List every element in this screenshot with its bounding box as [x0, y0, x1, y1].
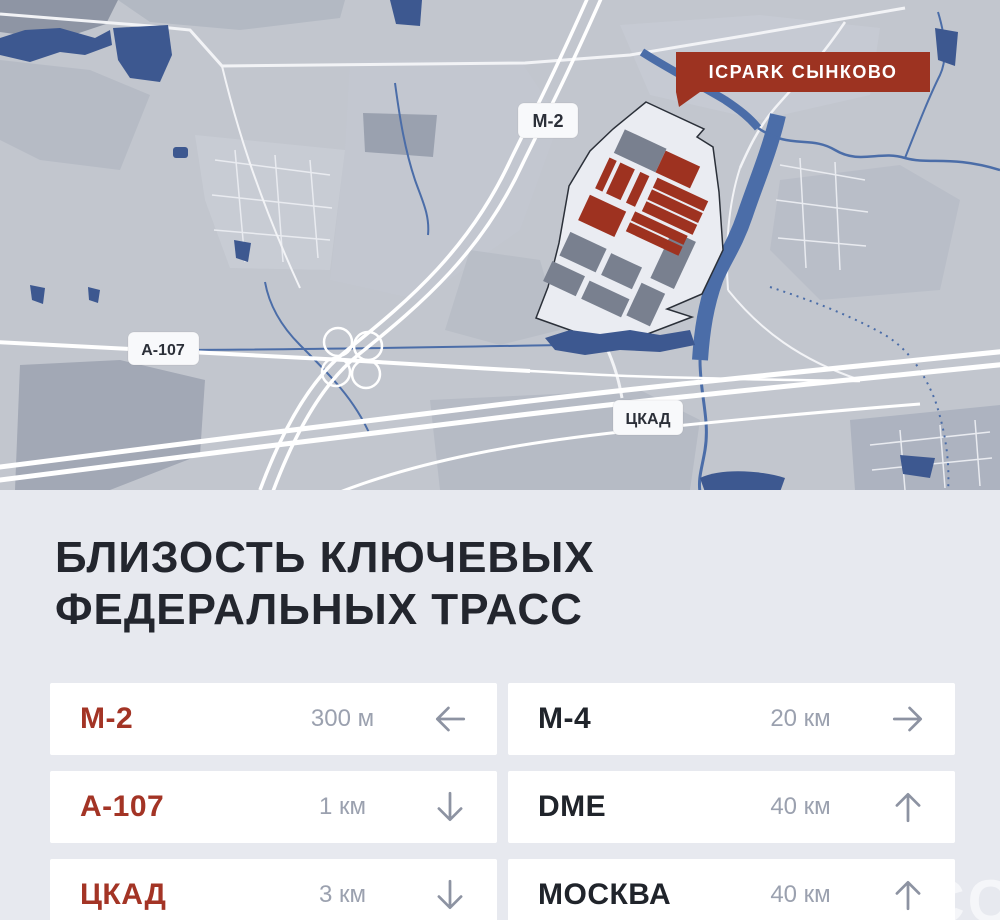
- page: М-2 А-107 ЦКАД ICPARK СЫНКОВО БЛИЗОСТЬ К…: [0, 0, 1000, 920]
- arrow-left-icon: [431, 700, 469, 738]
- route-card: ЦКАД3 км: [50, 859, 497, 920]
- road-label-tskad: ЦКАД: [613, 400, 683, 435]
- route-name: А-107: [50, 790, 255, 824]
- route-distance: 40 км: [713, 881, 888, 909]
- watermark: CC: [921, 867, 1000, 920]
- section-title-line2: ФЕДЕРАЛЬНЫХ ТРАСС: [55, 584, 595, 636]
- svg-text:А-107: А-107: [141, 342, 185, 359]
- arrow-up-icon: [889, 788, 927, 826]
- route-distance: 300 м: [255, 705, 430, 733]
- route-card: А-1071 км: [50, 771, 497, 843]
- routes-grid: М-2300 мМ-420 кмА-1071 кмDME40 кмЦКАД3 к…: [50, 683, 955, 920]
- route-card: М-2300 м: [50, 683, 497, 755]
- svg-text:ЦКАД: ЦКАД: [626, 411, 672, 428]
- route-card: МОСКВА40 км: [508, 859, 955, 920]
- map-canvas: М-2 А-107 ЦКАД ICPARK СЫНКОВО: [0, 0, 1000, 490]
- route-distance: 40 км: [713, 793, 888, 821]
- arrow-down-icon: [431, 788, 469, 826]
- route-card: DME40 км: [508, 771, 955, 843]
- arrow-down-icon: [431, 876, 469, 914]
- route-name: МОСКВА: [508, 878, 713, 912]
- route-name: ЦКАД: [50, 878, 255, 912]
- route-name: М-2: [50, 702, 255, 736]
- route-distance: 20 км: [713, 705, 888, 733]
- route-distance: 1 км: [255, 793, 430, 821]
- section-title-line1: БЛИЗОСТЬ КЛЮЧЕВЫХ: [55, 532, 595, 584]
- arrow-right-icon: [889, 700, 927, 738]
- location-map: М-2 А-107 ЦКАД ICPARK СЫНКОВО: [0, 0, 1000, 490]
- section-title: БЛИЗОСТЬ КЛЮЧЕВЫХ ФЕДЕРАЛЬНЫХ ТРАСС: [55, 532, 595, 636]
- route-name: DME: [508, 790, 713, 824]
- road-label-a107: А-107: [128, 332, 199, 365]
- route-name: М-4: [508, 702, 713, 736]
- park-badge-label: ICPARK СЫНКОВО: [709, 62, 898, 82]
- road-label-m2: М-2: [518, 103, 578, 138]
- route-distance: 3 км: [255, 881, 430, 909]
- svg-text:М-2: М-2: [533, 111, 564, 131]
- route-card: М-420 км: [508, 683, 955, 755]
